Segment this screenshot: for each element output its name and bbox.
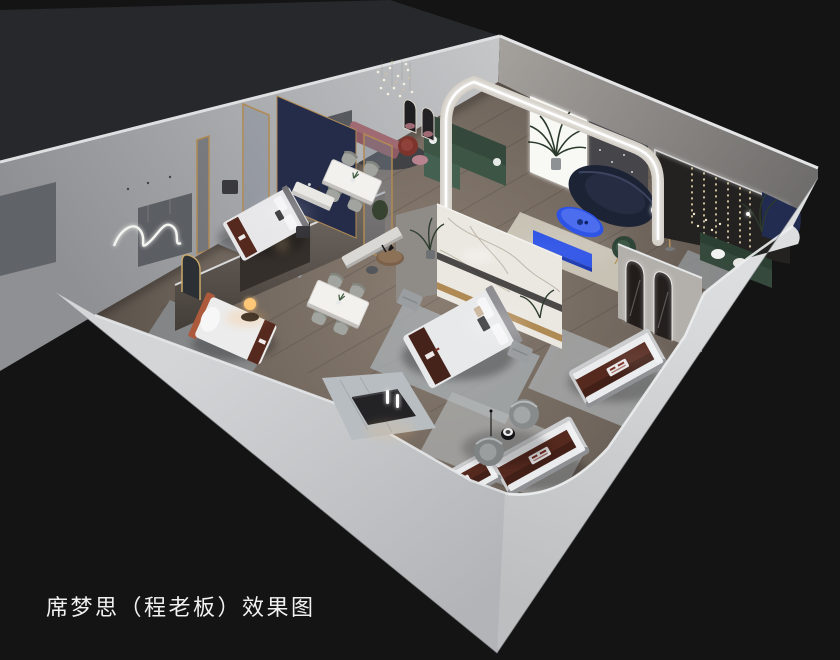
wall-window-panel (0, 182, 56, 276)
render-caption: 席梦思（程老板）效果图 (46, 590, 316, 622)
gold-door-frame (197, 136, 209, 254)
render-canvas: 席梦思（程老板）效果图 (0, 0, 840, 660)
pink-ottoman (412, 155, 428, 165)
greenery (372, 200, 388, 220)
fabric-armchair (509, 399, 539, 429)
nightstand (296, 226, 310, 238)
fabric-armchair (474, 436, 504, 466)
nightstand (222, 180, 238, 194)
cylinder-pendant-light (386, 390, 389, 404)
glow-table-lamp (244, 298, 256, 310)
side-table (501, 428, 515, 440)
isometric-render (0, 0, 840, 660)
cylinder-pendant-light (396, 394, 399, 408)
